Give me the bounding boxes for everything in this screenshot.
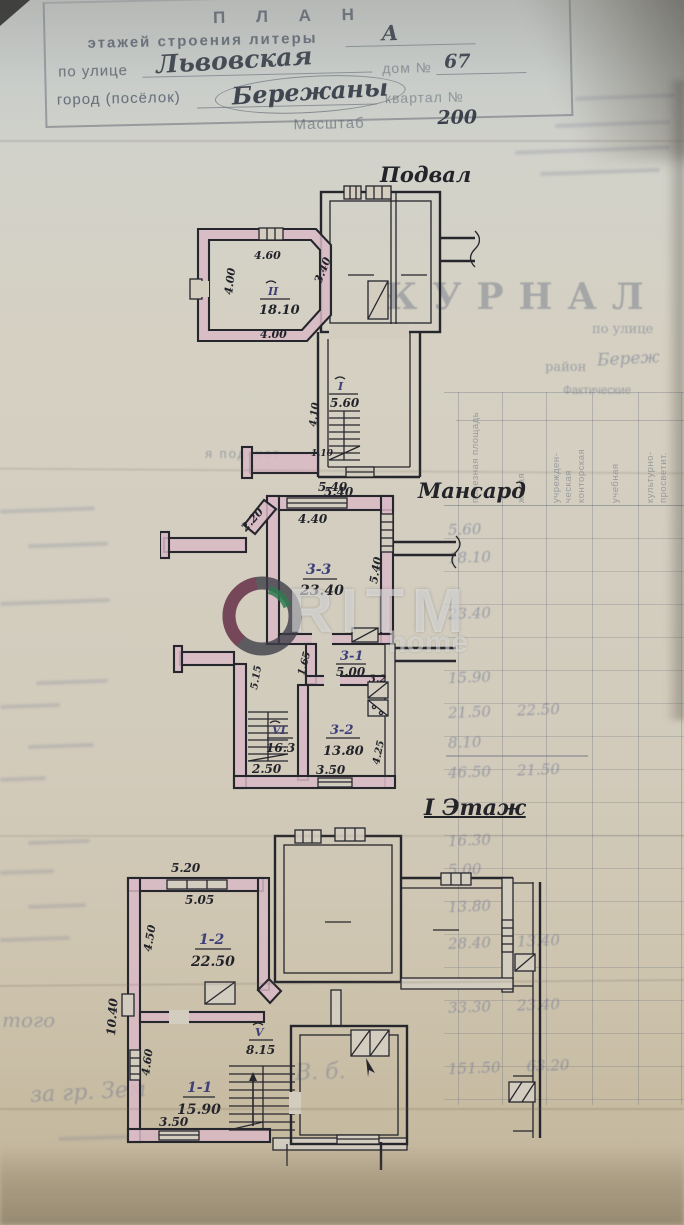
watermark: RITM home: [0, 0, 684, 1225]
watermark-sub-text: home: [388, 626, 468, 660]
scanned-floor-plan-photo: ЖУРНАЛ по улице район Береж Фактические …: [0, 0, 684, 1225]
